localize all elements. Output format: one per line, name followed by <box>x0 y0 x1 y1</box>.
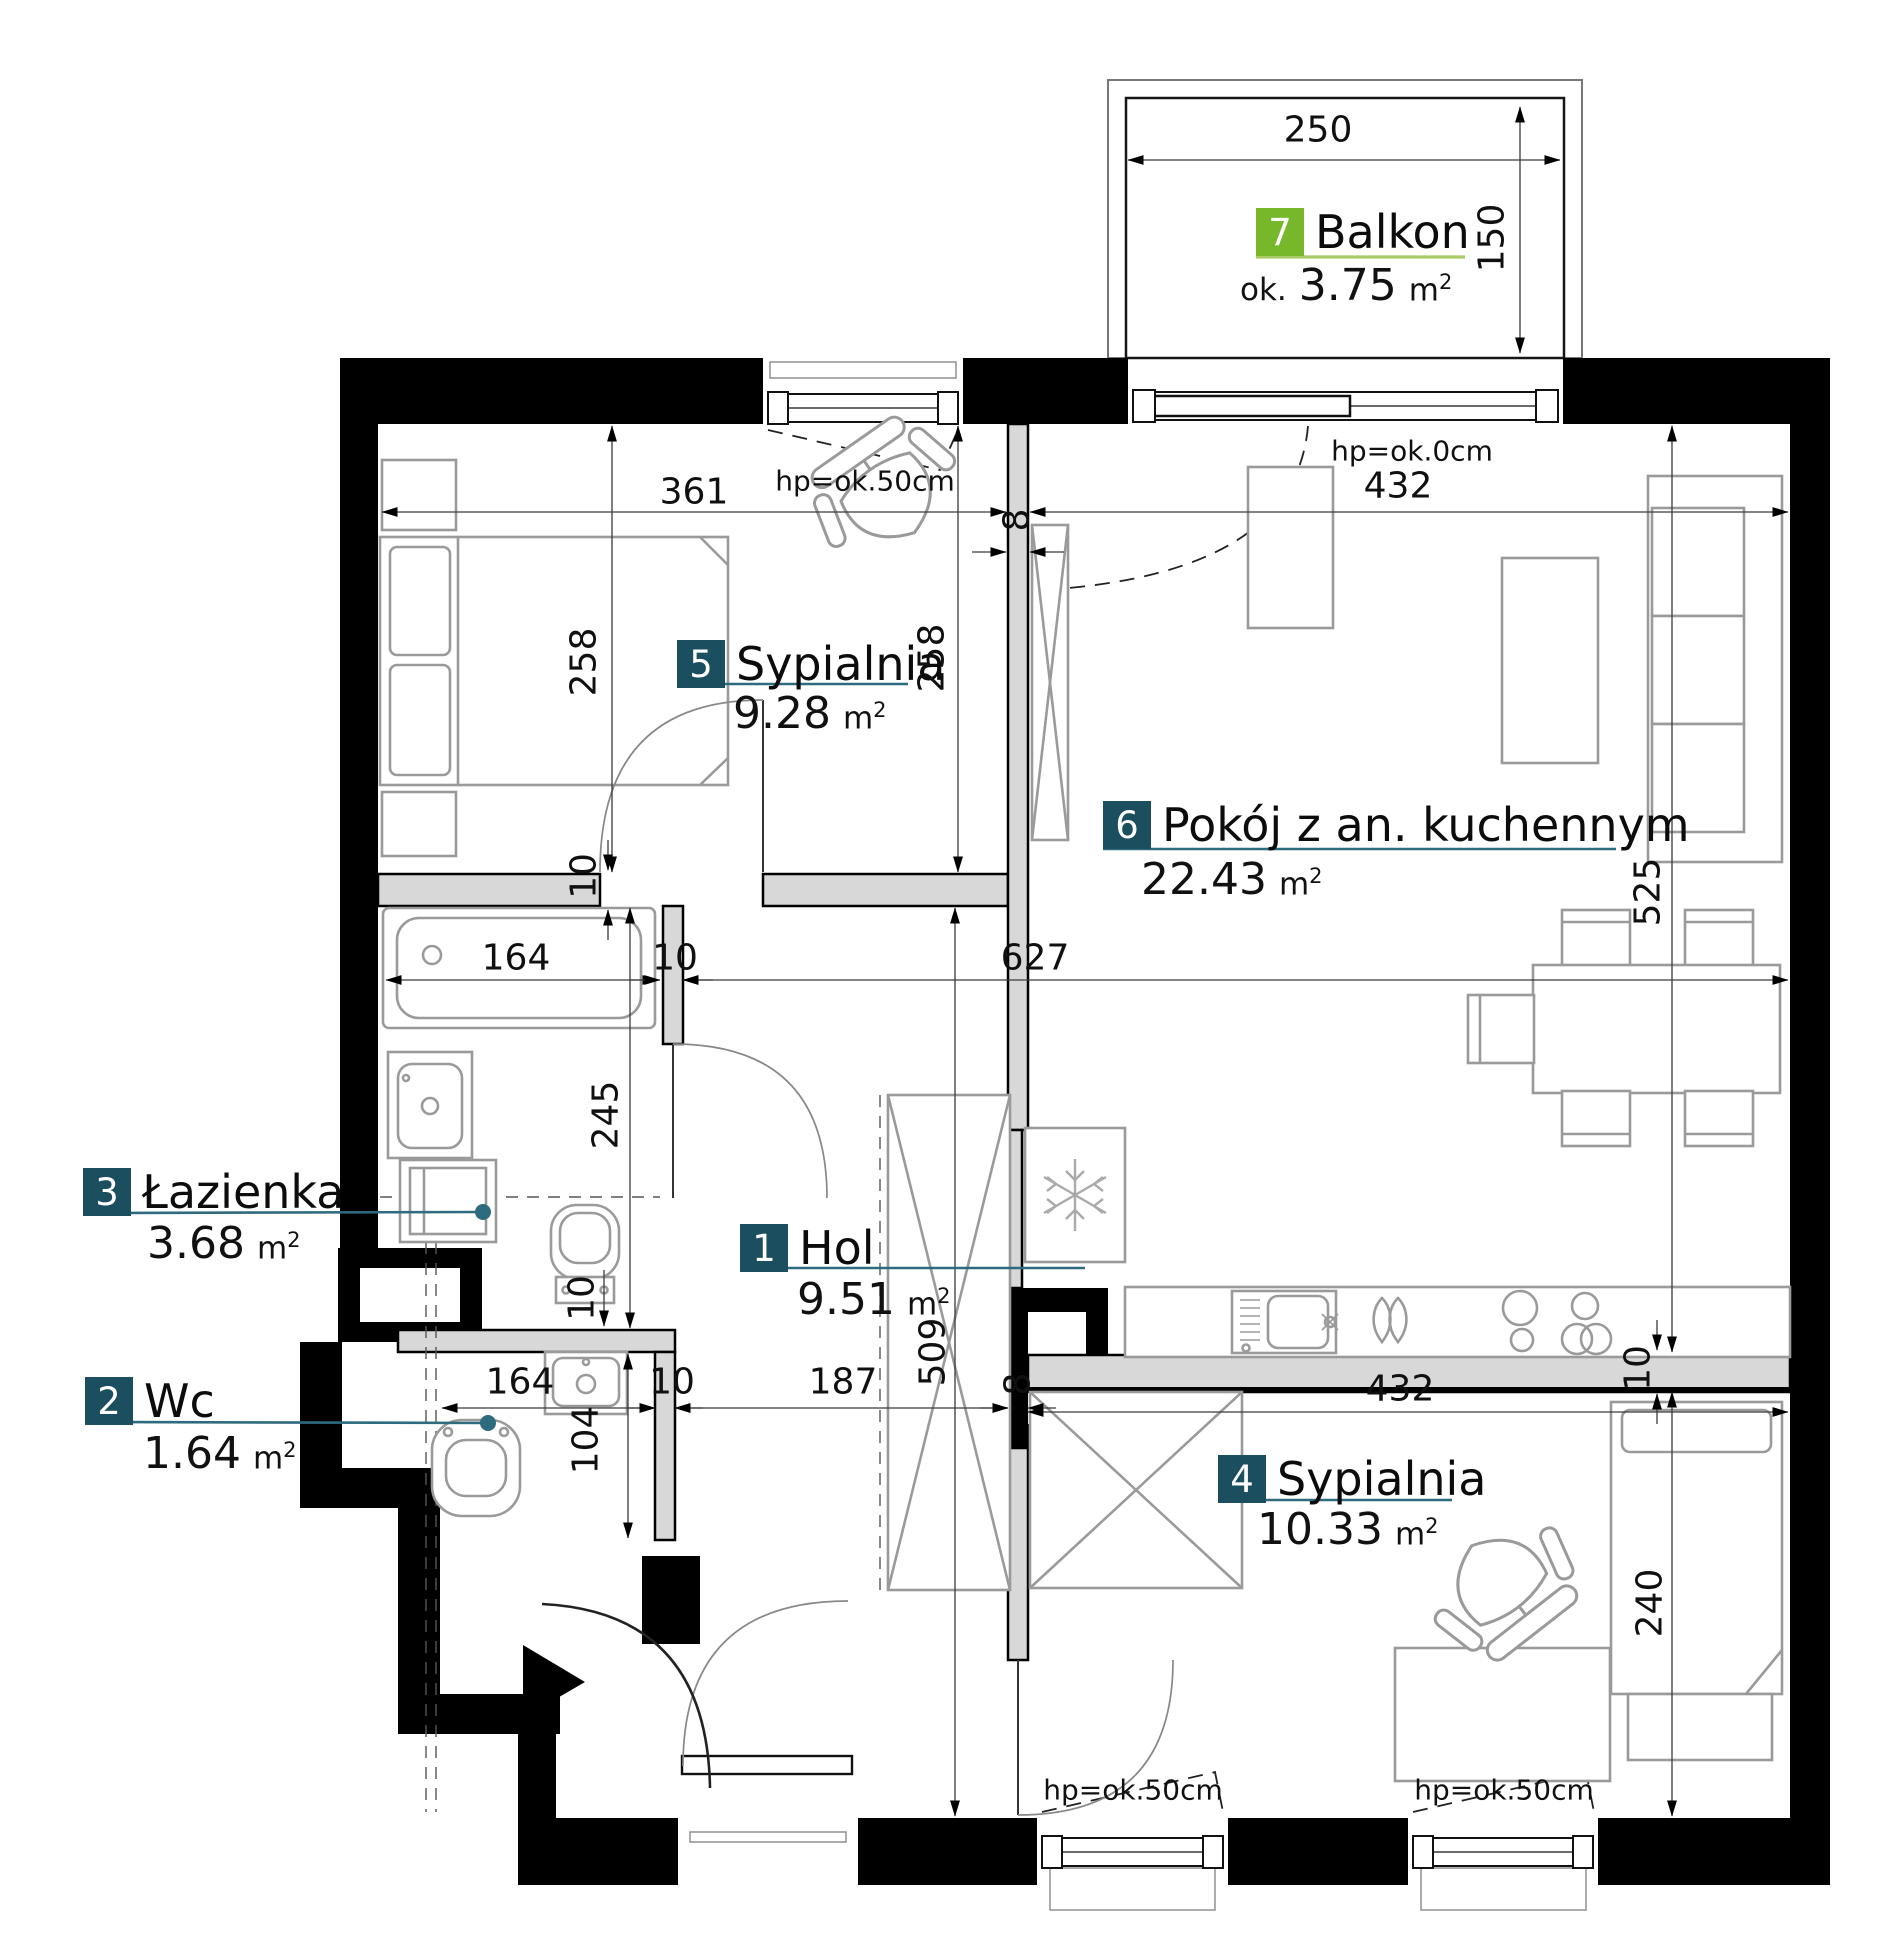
room-number-badge: 5 <box>677 640 725 688</box>
dim-wall10-kitchen: 10 <box>1618 1345 1659 1391</box>
dim-wall10-p4: 10 <box>562 1275 603 1321</box>
floor-plan-drawing <box>0 0 1900 1946</box>
bedroom4-wardrobe <box>1030 1392 1242 1588</box>
dim-balcony-width: 250 <box>1284 110 1353 151</box>
kitchen-counter <box>1125 1287 1790 1357</box>
dim-bedroom5-depth-right: 258 <box>912 624 953 693</box>
coffee-table <box>1502 558 1598 763</box>
dim-bedroom4-width: 432 <box>1366 1369 1435 1410</box>
room-number-badge: 1 <box>740 1224 788 1272</box>
room-number-badge: 4 <box>1218 1455 1266 1503</box>
entry-threshold <box>678 1818 858 1885</box>
room-label-lazienka: 3 Łazienka <box>83 1165 344 1219</box>
room-number-badge: 6 <box>1103 801 1151 849</box>
wc-toilet <box>432 1420 520 1516</box>
room-label-balkon: 7 Balkon <box>1256 205 1470 259</box>
leader-dot-wc <box>480 1415 496 1431</box>
dining-table-set <box>1468 910 1780 1146</box>
room-area-sypialnia5: 9.28 m2 <box>733 688 887 739</box>
room-label-pokoj: 6 Pokój z an. kuchennym <box>1103 798 1690 852</box>
parapet-label-bottom-left: hp=ok.50cm <box>1043 1774 1223 1807</box>
dim-bathtub-width: 164 <box>482 938 551 979</box>
room-area-sypialnia4: 10.33 m2 <box>1257 1504 1439 1555</box>
leader-dot-bathroom <box>475 1204 491 1220</box>
dim-bedroom5-width: 361 <box>660 472 729 513</box>
dim-bedroom4-depth: 240 <box>1630 1569 1671 1638</box>
balcony-door <box>1133 390 1558 422</box>
bottom-window-right <box>1413 1836 1593 1910</box>
dim-wc-width: 164 <box>486 1362 555 1403</box>
parapet-label-top-left: hp=ok.50cm <box>775 465 955 498</box>
dim-wall10-bath: 10 <box>652 938 698 979</box>
room-label-wc: 2 Wc <box>85 1374 215 1428</box>
floor-plan-page: 7 Balkon ok. 3.75 m2 5 Sypialnia 9.28 m2… <box>0 0 1900 1946</box>
dim-hall-depth: 509 <box>913 1318 954 1387</box>
dim-wall8-mid: 8 <box>998 1373 1039 1396</box>
dim-wc-depth: 104 <box>566 1406 607 1475</box>
room-number-badge: 2 <box>85 1377 133 1425</box>
dim-livingroom-depth: 525 <box>1628 858 1669 927</box>
room-label-hol: 1 Hol <box>740 1221 875 1275</box>
dim-hall-width: 187 <box>809 1362 878 1403</box>
dim-balcony-depth: 150 <box>1472 204 1513 273</box>
dim-wall8-top: 8 <box>997 509 1038 532</box>
dim-wall10-bedroom5: 10 <box>564 853 605 899</box>
dim-bathroom-depth: 245 <box>586 1081 627 1150</box>
parapet-label-bottom-right: hp=ok.50cm <box>1414 1774 1594 1807</box>
desk <box>1395 1648 1610 1781</box>
bathroom-sink <box>388 1052 472 1158</box>
room-area-pokoj: 22.43 m2 <box>1141 854 1323 905</box>
top-window-bedroom5 <box>768 362 958 424</box>
dim-livingroom-width: 432 <box>1364 466 1433 507</box>
room-area-lazienka: 3.68 m2 <box>147 1218 301 1269</box>
room-label-sypialnia4: 4 Sypialnia <box>1218 1452 1487 1506</box>
tv-stand <box>1248 467 1333 628</box>
dim-bedroom5-depth-left: 258 <box>564 628 605 697</box>
room-area-wc: 1.64 m2 <box>143 1428 297 1479</box>
dim-hall-living-width: 627 <box>1001 938 1070 979</box>
bed-double <box>380 460 728 856</box>
tall-cabinet <box>1032 525 1068 840</box>
room-label-sypialnia5: 5 Sypialnia <box>677 637 946 691</box>
dim-wall10-wc: 10 <box>649 1362 695 1403</box>
room-area-balkon: ok. 3.75 m2 <box>1240 260 1452 311</box>
room-number-badge: 7 <box>1256 208 1304 256</box>
bottom-window-left <box>1042 1836 1223 1910</box>
parapet-label-top-right: hp=ok.0cm <box>1331 435 1493 468</box>
room-number-badge: 3 <box>83 1168 131 1216</box>
washing-machine <box>400 1160 496 1242</box>
